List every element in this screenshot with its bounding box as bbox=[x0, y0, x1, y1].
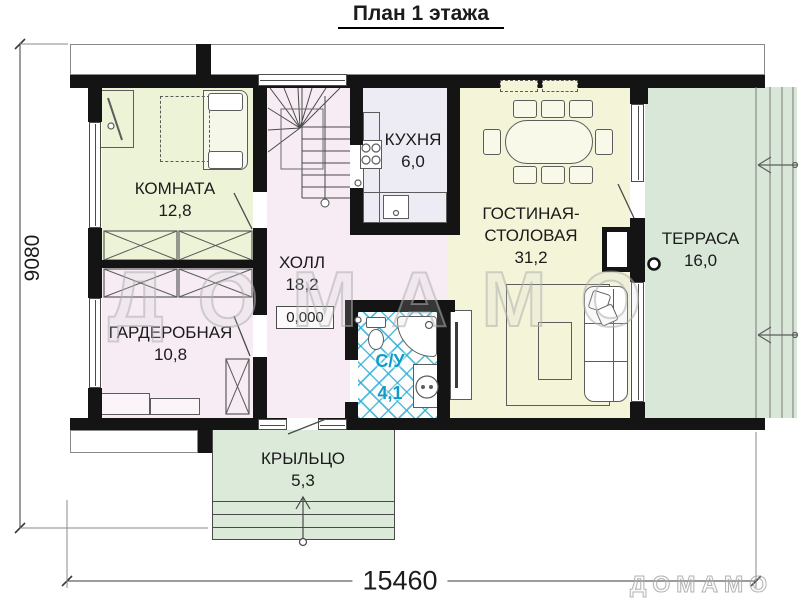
label-kuhnya: КУХНЯ 6,0 bbox=[373, 129, 453, 173]
room-name: ГОСТИНАЯ-СТОЛОВАЯ bbox=[465, 203, 597, 247]
label-garderobnaya: ГАРДЕРОБНАЯ 10,8 bbox=[98, 322, 243, 366]
room-name: КУХНЯ bbox=[373, 129, 453, 151]
dimension-vertical: 9080 bbox=[21, 229, 45, 288]
room-name: ГАРДЕРОБНАЯ bbox=[98, 322, 243, 344]
plan-linework bbox=[0, 0, 800, 606]
page-title: План 1 этажа bbox=[338, 2, 504, 29]
label-komnata: КОМНАТА 12,8 bbox=[110, 178, 240, 222]
room-area: 16,0 bbox=[648, 250, 753, 272]
room-name: ТЕРРАСА bbox=[648, 228, 753, 250]
label-gostinaya: ГОСТИНАЯ-СТОЛОВАЯ 31,2 bbox=[465, 203, 597, 269]
room-area: 12,8 bbox=[110, 200, 240, 222]
label-holl: ХОЛЛ 18,2 bbox=[262, 252, 342, 296]
room-area: 18,2 bbox=[262, 274, 342, 296]
room-area: 5,3 bbox=[253, 470, 353, 492]
porch-entry-arrow bbox=[296, 497, 310, 546]
room-name: ХОЛЛ bbox=[262, 252, 342, 274]
room-area: 10,8 bbox=[98, 344, 243, 366]
room-name: С/У bbox=[352, 346, 428, 378]
floor-plan: План 1 этажа КОМНАТА 12,8 ГАРДЕРОБНАЯ 10… bbox=[0, 0, 800, 606]
dimension-lines bbox=[15, 39, 761, 588]
room-area: 6,0 bbox=[373, 151, 453, 173]
label-su: С/У 4,1 bbox=[352, 346, 428, 409]
room-name: КРЫЛЬЦО bbox=[253, 448, 353, 470]
label-terrasa: ТЕРРАСА 16,0 bbox=[648, 228, 753, 272]
label-kryltso: КРЫЛЬЦО 5,3 bbox=[253, 448, 353, 492]
room-area: 4,1 bbox=[352, 378, 428, 410]
room-name: КОМНАТА bbox=[110, 178, 240, 200]
dimension-horizontal: 15460 bbox=[352, 566, 447, 597]
mirror-icon bbox=[108, 98, 122, 140]
level-mark: 0,000 bbox=[276, 306, 334, 329]
staircase bbox=[268, 88, 350, 207]
room-area: 31,2 bbox=[465, 247, 597, 269]
